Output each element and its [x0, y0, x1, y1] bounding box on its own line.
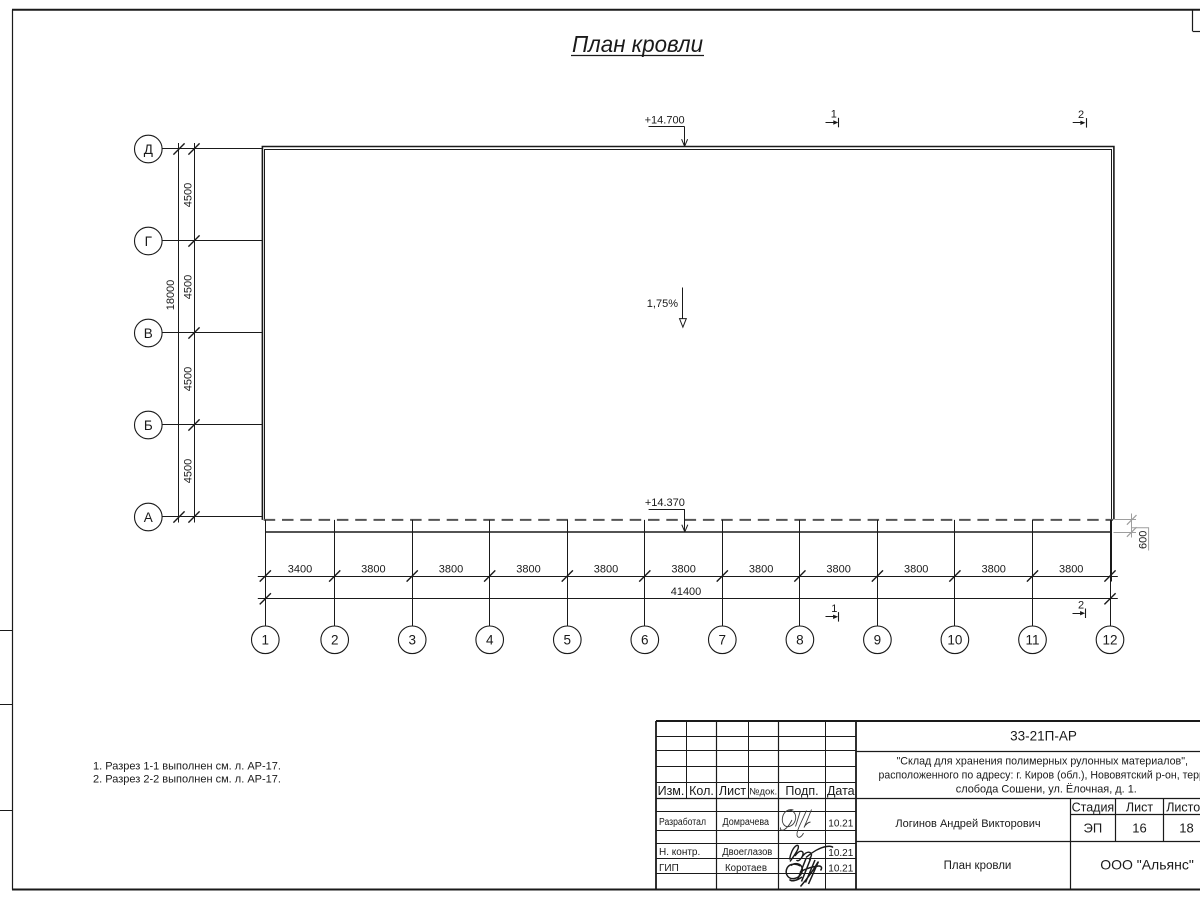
svg-text:3: 3	[408, 633, 416, 648]
svg-text:Листов: Листов	[1166, 800, 1200, 814]
svg-text:3800: 3800	[826, 564, 850, 576]
svg-text:4500: 4500	[183, 275, 195, 299]
svg-text:4500: 4500	[183, 459, 195, 483]
svg-text:8: 8	[796, 633, 804, 648]
svg-text:3400: 3400	[288, 564, 312, 576]
svg-text:Н. контр.: Н. контр.	[659, 847, 700, 858]
svg-text:4500: 4500	[183, 183, 195, 207]
svg-text:11: 11	[1025, 633, 1039, 648]
svg-text:18000: 18000	[165, 280, 177, 311]
svg-text:Разработал: Разработал	[659, 816, 706, 828]
svg-text:Стадия: Стадия	[1072, 800, 1115, 814]
svg-text:План кровли: План кровли	[572, 31, 703, 57]
svg-text:600: 600	[1137, 531, 1149, 549]
svg-text:Г: Г	[145, 234, 153, 249]
svg-text:3800: 3800	[1059, 564, 1083, 576]
svg-text:Двоеглазов: Двоеглазов	[722, 847, 772, 858]
svg-text:1: 1	[262, 633, 270, 648]
svg-text:План кровли: План кровли	[944, 860, 1012, 872]
svg-text:В: В	[144, 326, 153, 341]
svg-text:Коротаев: Коротаев	[725, 863, 767, 874]
svg-text:10: 10	[947, 633, 962, 648]
svg-text:Лист: Лист	[719, 784, 746, 798]
svg-text:Подп.: Подп.	[785, 784, 818, 798]
svg-text:18: 18	[1179, 820, 1193, 835]
svg-text:Изм.: Изм.	[658, 784, 685, 798]
svg-text:Кол.: Кол.	[689, 784, 714, 798]
svg-text:3800: 3800	[749, 564, 773, 576]
svg-text:12: 12	[1102, 633, 1117, 648]
svg-text:+14.700: +14.700	[645, 114, 685, 126]
svg-text:расположенного по адресу: г. К: расположенного по адресу: г. Киров (обл.…	[879, 769, 1200, 781]
svg-text:2: 2	[1078, 599, 1084, 611]
svg-text:Логинов Андрей Викторович: Логинов Андрей Викторович	[895, 818, 1040, 830]
svg-text:16: 16	[1132, 820, 1146, 835]
svg-text:3800: 3800	[361, 564, 385, 576]
svg-text:Лист: Лист	[1126, 800, 1153, 814]
svg-text:2: 2	[1078, 109, 1084, 121]
svg-text:10.21: 10.21	[828, 818, 853, 829]
svg-text:Домрачева: Домрачева	[723, 817, 770, 828]
svg-text:3800: 3800	[904, 564, 928, 576]
svg-text:3800: 3800	[516, 564, 540, 576]
svg-text:3800: 3800	[439, 564, 463, 576]
svg-text:10.21: 10.21	[828, 863, 853, 874]
svg-text:А: А	[144, 510, 153, 525]
svg-text:3800: 3800	[981, 564, 1005, 576]
svg-text:+14.370: +14.370	[645, 497, 685, 509]
svg-text:Дата: Дата	[827, 784, 855, 798]
svg-text:5: 5	[564, 633, 572, 648]
svg-text:№док.: №док.	[749, 787, 777, 798]
svg-text:7: 7	[719, 633, 727, 648]
svg-text:"Склад для хранения полимерных: "Склад для хранения полимерных рулонных …	[897, 755, 1189, 767]
svg-text:слобода Сошени, ул. Ёлочная, д: слобода Сошени, ул. Ёлочная, д. 1.	[956, 783, 1137, 795]
svg-text:1. Разрез 1-1 выполнен см. л.: 1. Разрез 1-1 выполнен см. л. АР-17.	[93, 760, 281, 772]
svg-text:1: 1	[831, 603, 837, 615]
svg-text:2: 2	[331, 633, 339, 648]
svg-text:6: 6	[641, 633, 649, 648]
svg-text:1: 1	[831, 109, 837, 121]
svg-text:3800: 3800	[671, 564, 695, 576]
svg-text:10.21: 10.21	[828, 848, 853, 859]
svg-text:Б: Б	[144, 418, 153, 433]
svg-text:4500: 4500	[183, 367, 195, 391]
svg-text:ЭП: ЭП	[1084, 820, 1103, 835]
svg-text:3800: 3800	[594, 564, 618, 576]
svg-text:ГИП: ГИП	[659, 863, 679, 874]
svg-text:41400: 41400	[671, 586, 702, 598]
svg-text:2. Разрез 2-2 выполнен см. л.: 2. Разрез 2-2 выполнен см. л. АР-17.	[93, 774, 281, 786]
svg-text:9: 9	[874, 633, 882, 648]
svg-text:Д: Д	[144, 142, 153, 157]
svg-text:1,75%: 1,75%	[647, 298, 678, 310]
svg-text:4: 4	[486, 633, 494, 648]
svg-text:33-21П-АР: 33-21П-АР	[1010, 729, 1077, 744]
svg-text:ООО "Альянс": ООО "Альянс"	[1100, 857, 1194, 873]
